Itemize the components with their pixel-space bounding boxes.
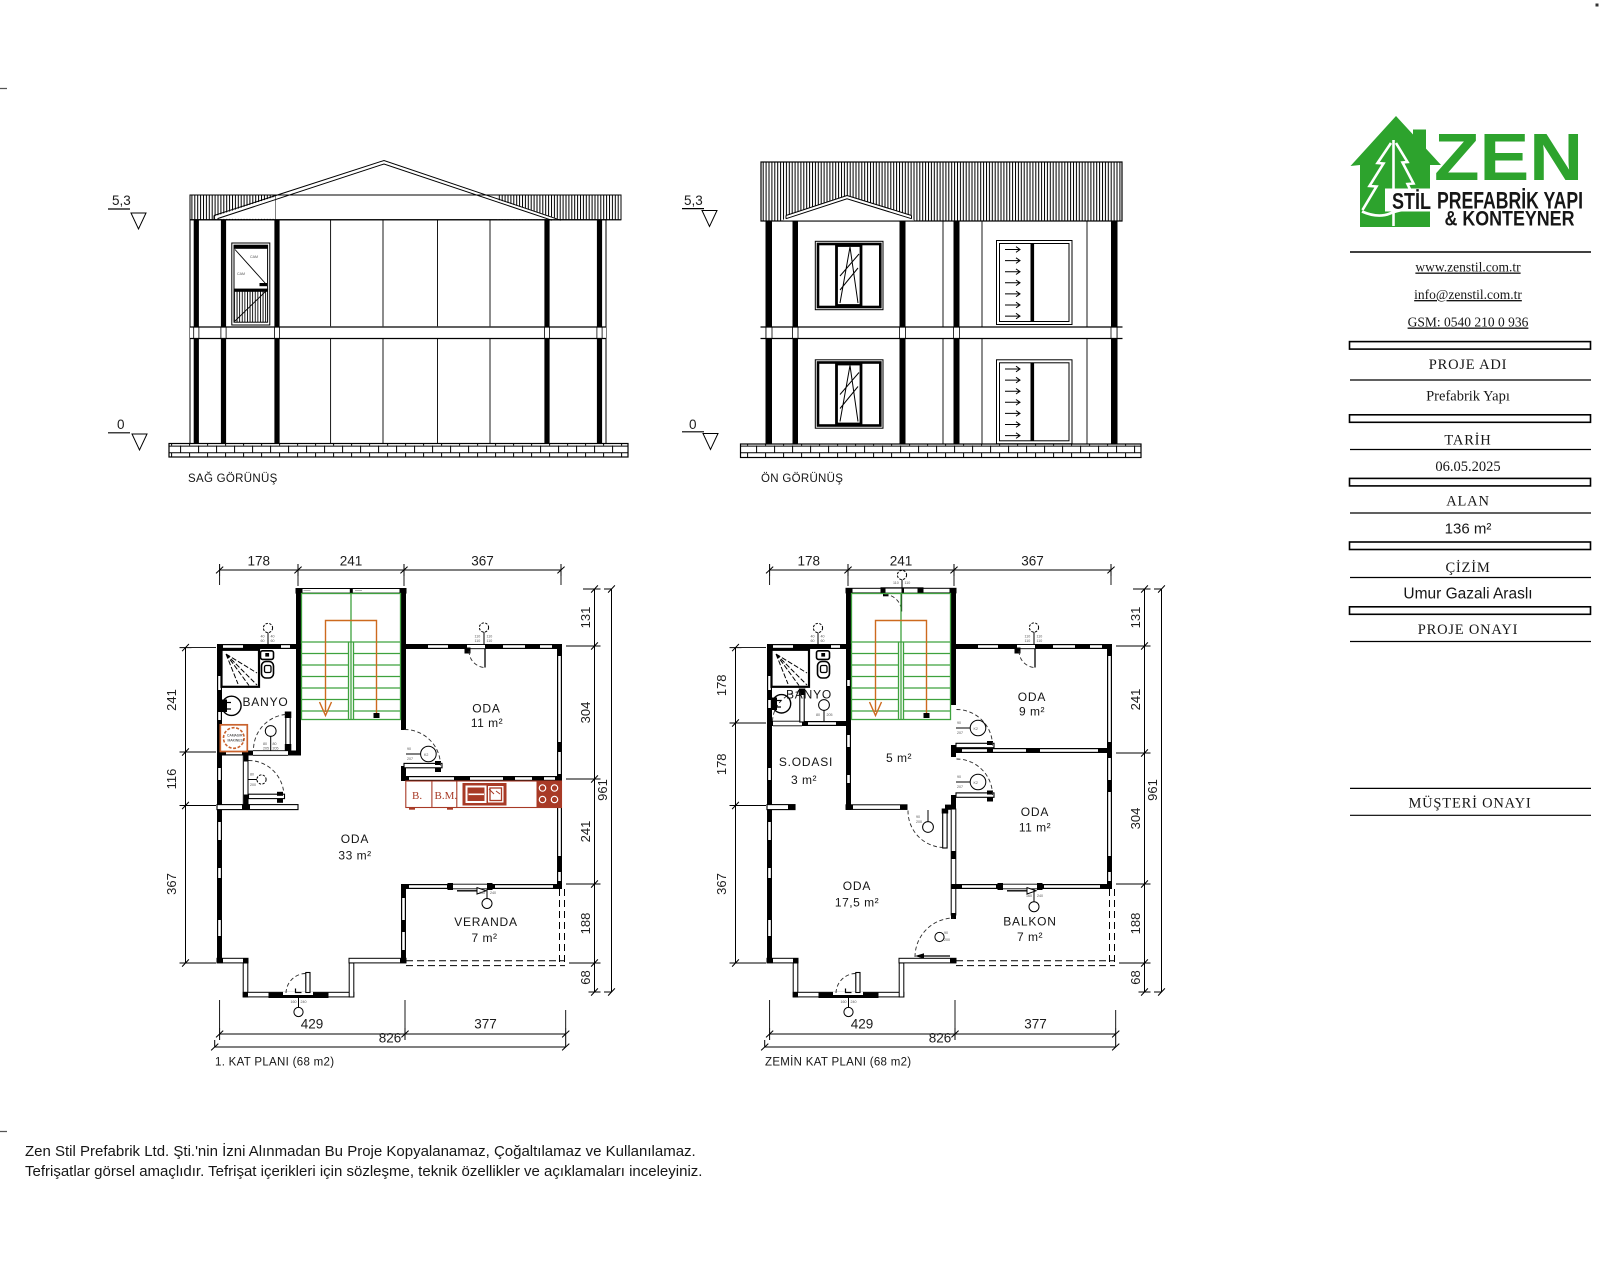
svg-text:B.: B. bbox=[412, 790, 422, 802]
svg-text:826: 826 bbox=[379, 1031, 402, 1046]
svg-text:110: 110 bbox=[487, 635, 493, 639]
svg-text:240: 240 bbox=[490, 891, 496, 895]
svg-text:90: 90 bbox=[407, 747, 411, 751]
svg-text:ÇİZİM: ÇİZİM bbox=[1445, 560, 1490, 576]
svg-text:0: 0 bbox=[689, 417, 697, 432]
svg-text:205: 205 bbox=[273, 747, 279, 751]
svg-text:160: 160 bbox=[479, 891, 485, 895]
svg-text:CAM: CAM bbox=[250, 255, 258, 259]
svg-text:178: 178 bbox=[714, 753, 729, 775]
svg-text:3 m²: 3 m² bbox=[791, 773, 817, 787]
svg-text:5,3: 5,3 bbox=[112, 193, 131, 208]
svg-text:367: 367 bbox=[164, 873, 179, 895]
svg-text:429: 429 bbox=[851, 1017, 874, 1032]
svg-text:240: 240 bbox=[1037, 894, 1043, 898]
svg-text:207: 207 bbox=[407, 757, 413, 761]
svg-text:K2: K2 bbox=[974, 727, 978, 731]
svg-text:188: 188 bbox=[578, 913, 593, 935]
svg-text:17,5 m²: 17,5 m² bbox=[835, 896, 879, 910]
svg-text:80: 80 bbox=[816, 713, 820, 717]
svg-text:80: 80 bbox=[250, 773, 254, 777]
svg-text:110: 110 bbox=[1037, 639, 1043, 643]
svg-text:BANYO: BANYO bbox=[786, 688, 832, 702]
svg-text:TARİH: TARİH bbox=[1444, 433, 1491, 449]
svg-text:205: 205 bbox=[263, 747, 269, 751]
svg-text:60: 60 bbox=[271, 639, 275, 643]
svg-text:68: 68 bbox=[578, 970, 593, 984]
svg-text:PROJE ONAYI: PROJE ONAYI bbox=[1418, 622, 1519, 638]
svg-text:241: 241 bbox=[340, 554, 363, 569]
svg-text:1. KAT PLANI (68 m2): 1. KAT PLANI (68 m2) bbox=[215, 1057, 334, 1069]
svg-text:VERANDA: VERANDA bbox=[454, 915, 518, 929]
svg-text:110: 110 bbox=[475, 639, 481, 643]
svg-text:367: 367 bbox=[1021, 554, 1044, 569]
svg-text:110: 110 bbox=[1025, 635, 1031, 639]
svg-text:160: 160 bbox=[291, 1000, 297, 1004]
svg-text:60: 60 bbox=[261, 639, 265, 643]
svg-text:Umur Gazali Araslı: Umur Gazali Araslı bbox=[1403, 586, 1532, 603]
svg-text:160: 160 bbox=[841, 1000, 847, 1004]
svg-text:377: 377 bbox=[1024, 1017, 1047, 1032]
svg-text:826: 826 bbox=[929, 1031, 952, 1046]
svg-text:info@zenstil.com.tr: info@zenstil.com.tr bbox=[1414, 287, 1522, 302]
svg-text:178: 178 bbox=[798, 554, 821, 569]
svg-text:304: 304 bbox=[578, 702, 593, 724]
svg-text:80: 80 bbox=[273, 742, 277, 746]
svg-text:11 m²: 11 m² bbox=[1019, 821, 1051, 835]
svg-text:& KONTEYNER: & KONTEYNER bbox=[1445, 208, 1575, 231]
svg-text:90: 90 bbox=[957, 721, 961, 725]
svg-text:ÖN GÖRÜNÜŞ: ÖN GÖRÜNÜŞ bbox=[761, 473, 843, 485]
svg-text:STİL: STİL bbox=[1392, 188, 1431, 214]
svg-text:110: 110 bbox=[1037, 635, 1043, 639]
svg-text:40: 40 bbox=[261, 635, 265, 639]
svg-text:241: 241 bbox=[164, 689, 179, 711]
svg-text:MAKINESI: MAKINESI bbox=[228, 739, 244, 743]
svg-text:304: 304 bbox=[1128, 808, 1143, 830]
svg-text:160: 160 bbox=[1026, 894, 1032, 898]
svg-text:Tefrişatlar görsel amaçlıdır.: Tefrişatlar görsel amaçlıdır. Tefrişat i… bbox=[25, 1163, 702, 1180]
svg-text:0: 0 bbox=[117, 417, 125, 432]
svg-text:429: 429 bbox=[301, 1017, 324, 1032]
svg-text:961: 961 bbox=[1145, 779, 1160, 801]
svg-text:68: 68 bbox=[1128, 970, 1143, 984]
svg-text:136 m²: 136 m² bbox=[1445, 521, 1492, 538]
svg-text:Prefabrik Yapı: Prefabrik Yapı bbox=[1426, 389, 1510, 405]
svg-text:110: 110 bbox=[475, 635, 481, 639]
svg-text:MÜŞTERİ ONAYI: MÜŞTERİ ONAYI bbox=[1408, 795, 1531, 812]
svg-text:110: 110 bbox=[1025, 639, 1031, 643]
svg-text:40: 40 bbox=[271, 635, 275, 639]
svg-text:ODA: ODA bbox=[1018, 690, 1046, 704]
svg-text:110: 110 bbox=[893, 581, 899, 585]
svg-text:90: 90 bbox=[944, 931, 948, 935]
svg-text:110: 110 bbox=[905, 581, 911, 585]
svg-text:80: 80 bbox=[263, 742, 267, 746]
svg-text:ODA: ODA bbox=[1021, 805, 1049, 819]
svg-text:377: 377 bbox=[474, 1017, 497, 1032]
svg-text:60: 60 bbox=[821, 639, 825, 643]
svg-text:241: 241 bbox=[890, 554, 913, 569]
svg-text:367: 367 bbox=[471, 554, 494, 569]
svg-text:06.05.2025: 06.05.2025 bbox=[1435, 459, 1500, 475]
svg-text:11 m²: 11 m² bbox=[471, 716, 503, 730]
svg-text:205: 205 bbox=[827, 713, 833, 717]
svg-text:110: 110 bbox=[487, 639, 493, 643]
svg-text:90: 90 bbox=[916, 815, 920, 819]
svg-text:SAĞ GÖRÜNÜŞ: SAĞ GÖRÜNÜŞ bbox=[188, 472, 278, 485]
svg-text:90: 90 bbox=[957, 775, 961, 779]
svg-text:PROJE ADI: PROJE ADI bbox=[1429, 357, 1508, 373]
svg-text:200: 200 bbox=[916, 820, 922, 824]
svg-text:207: 207 bbox=[957, 731, 963, 735]
svg-text:K2: K2 bbox=[424, 753, 428, 757]
svg-text:178: 178 bbox=[714, 674, 729, 696]
svg-text:7 m²: 7 m² bbox=[472, 931, 498, 945]
svg-text:CAM: CAM bbox=[237, 272, 245, 276]
svg-text:B.M.: B.M. bbox=[435, 790, 458, 802]
svg-text:200: 200 bbox=[944, 938, 950, 942]
svg-text:ZEN: ZEN bbox=[1434, 120, 1583, 195]
svg-text:ALAN: ALAN bbox=[1446, 494, 1489, 510]
svg-text:K2: K2 bbox=[974, 781, 978, 785]
svg-text:5 m²: 5 m² bbox=[886, 751, 912, 765]
svg-text:131: 131 bbox=[578, 607, 593, 629]
svg-text:BANYO: BANYO bbox=[243, 695, 289, 709]
svg-text:www.zenstil.com.tr: www.zenstil.com.tr bbox=[1415, 260, 1521, 275]
svg-text:5,3: 5,3 bbox=[684, 193, 703, 208]
svg-text:200: 200 bbox=[250, 783, 256, 787]
svg-text:40: 40 bbox=[821, 635, 825, 639]
svg-text:ODA: ODA bbox=[341, 832, 369, 846]
svg-text:240: 240 bbox=[851, 1000, 857, 1004]
svg-text:188: 188 bbox=[1128, 913, 1143, 935]
svg-text:ZEMİN KAT PLANI (68 m2): ZEMİN KAT PLANI (68 m2) bbox=[765, 1056, 911, 1069]
svg-text:178: 178 bbox=[248, 554, 271, 569]
svg-text:240: 240 bbox=[301, 1000, 307, 1004]
svg-text:ODA: ODA bbox=[472, 702, 500, 716]
svg-text:131: 131 bbox=[1128, 607, 1143, 629]
svg-text:Zen Stil Prefabrik Ltd. Şti.'n: Zen Stil Prefabrik Ltd. Şti.'nin İzni Al… bbox=[25, 1142, 696, 1160]
svg-text:GSM: 0540 210 0 936: GSM: 0540 210 0 936 bbox=[1408, 315, 1529, 330]
svg-text:60: 60 bbox=[811, 639, 815, 643]
svg-text:9 m²: 9 m² bbox=[1019, 705, 1045, 719]
svg-text:33 m²: 33 m² bbox=[338, 849, 371, 863]
svg-text:961: 961 bbox=[595, 779, 610, 801]
svg-text:BALKON: BALKON bbox=[1003, 915, 1057, 929]
svg-text:241: 241 bbox=[1128, 689, 1143, 711]
svg-text:207: 207 bbox=[957, 785, 963, 789]
svg-text:40: 40 bbox=[811, 635, 815, 639]
svg-text:CAMASIR: CAMASIR bbox=[227, 734, 243, 738]
svg-text:7 m²: 7 m² bbox=[1017, 930, 1043, 944]
svg-text:ODA: ODA bbox=[843, 879, 871, 893]
svg-text:241: 241 bbox=[578, 821, 593, 843]
svg-text:116: 116 bbox=[164, 769, 179, 790]
svg-text:367: 367 bbox=[714, 873, 729, 895]
svg-text:S.ODASI: S.ODASI bbox=[779, 755, 833, 769]
